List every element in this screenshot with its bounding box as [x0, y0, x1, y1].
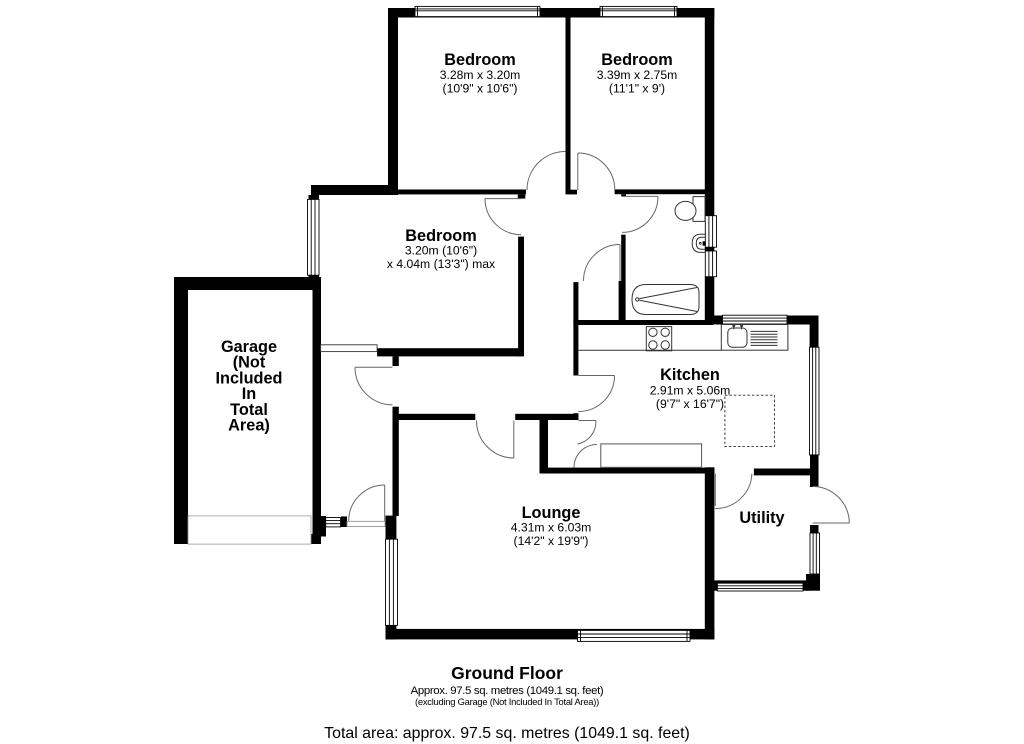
svg-text:(excluding Garage (Not Include: (excluding Garage (Not Included In Total… [415, 696, 599, 707]
svg-text:Lounge: Lounge [522, 504, 581, 522]
svg-text:2.91m x 5.06m: 2.91m x 5.06m [650, 384, 731, 398]
svg-text:x 4.04m (13'3") max: x 4.04m (13'3") max [387, 257, 495, 271]
svg-text:Bedroom: Bedroom [405, 227, 476, 245]
svg-text:(9'7" x 16'7"): (9'7" x 16'7") [656, 397, 724, 411]
svg-text:(10'9" x 10'6"): (10'9" x 10'6") [443, 82, 518, 96]
svg-text:Bedroom: Bedroom [444, 51, 515, 69]
svg-text:3.20m (10'6"): 3.20m (10'6") [405, 244, 477, 258]
svg-text:Ground Floor: Ground Floor [451, 663, 563, 683]
svg-text:Area): Area) [228, 417, 270, 435]
svg-text:3.28m x 3.20m: 3.28m x 3.20m [440, 68, 521, 82]
svg-text:4.31m x 6.03m: 4.31m x 6.03m [511, 521, 592, 535]
svg-text:Bedroom: Bedroom [601, 51, 672, 69]
svg-text:(14'2" x 19'9"): (14'2" x 19'9") [514, 534, 589, 548]
svg-text:Utility: Utility [739, 509, 784, 527]
svg-text:3.39m x 2.75m: 3.39m x 2.75m [597, 68, 678, 82]
svg-text:Total area: approx. 97.5 sq. m: Total area: approx. 97.5 sq. metres (104… [324, 725, 690, 742]
svg-text:Kitchen: Kitchen [660, 366, 720, 384]
svg-text:(11'1" x 9'): (11'1" x 9') [609, 82, 665, 96]
